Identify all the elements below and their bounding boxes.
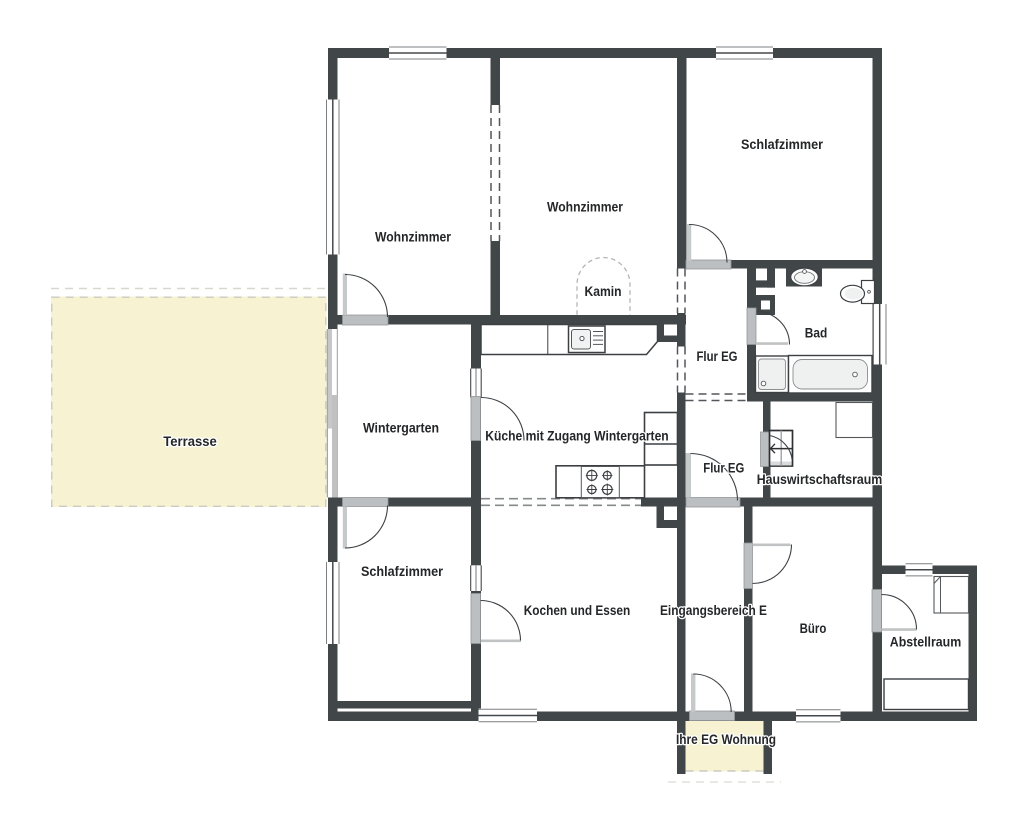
svg-text:Wohnzimmer: Wohnzimmer	[547, 200, 624, 215]
svg-text:Wohnzimmer: Wohnzimmer	[375, 230, 452, 245]
svg-text:Kochen und Essen: Kochen und Essen	[524, 603, 631, 618]
svg-text:Kamin: Kamin	[585, 284, 622, 299]
svg-text:Abstellraum: Abstellraum	[890, 635, 961, 650]
svg-text:Ihre EG Wohnung: Ihre EG Wohnung	[676, 732, 776, 747]
svg-text:Büro: Büro	[800, 621, 827, 636]
svg-text:Schlafzimmer: Schlafzimmer	[361, 564, 444, 579]
svg-text:Wintergarten: Wintergarten	[363, 421, 439, 436]
svg-text:Flur EG: Flur EG	[703, 461, 744, 476]
svg-text:Schlafzimmer: Schlafzimmer	[741, 137, 824, 152]
svg-text:Hauswirtschaftsraum: Hauswirtschaftsraum	[757, 472, 883, 487]
svg-text:Terrasse: Terrasse	[163, 434, 216, 449]
svg-text:Flur EG: Flur EG	[697, 349, 738, 364]
svg-text:Küche mit Zugang Wintergarten: Küche mit Zugang Wintergarten	[485, 429, 668, 444]
svg-text:Eingangsbereich E: Eingangsbereich E	[660, 603, 767, 618]
svg-text:Bad: Bad	[805, 326, 828, 341]
